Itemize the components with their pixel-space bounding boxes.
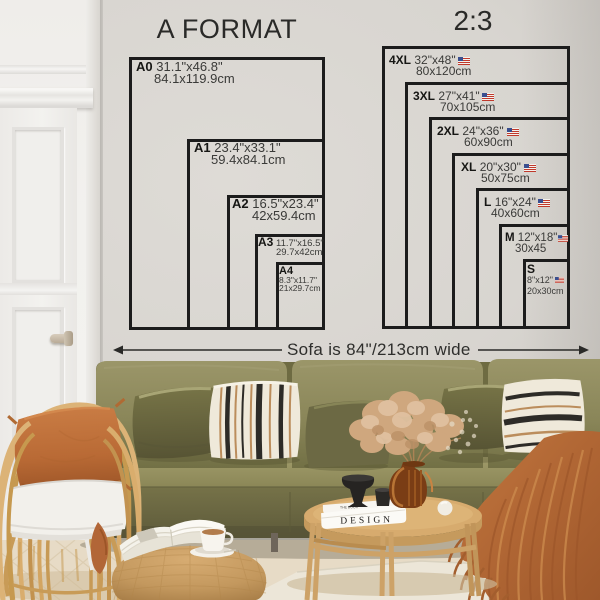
- svg-text:DESIGN: DESIGN: [340, 515, 393, 526]
